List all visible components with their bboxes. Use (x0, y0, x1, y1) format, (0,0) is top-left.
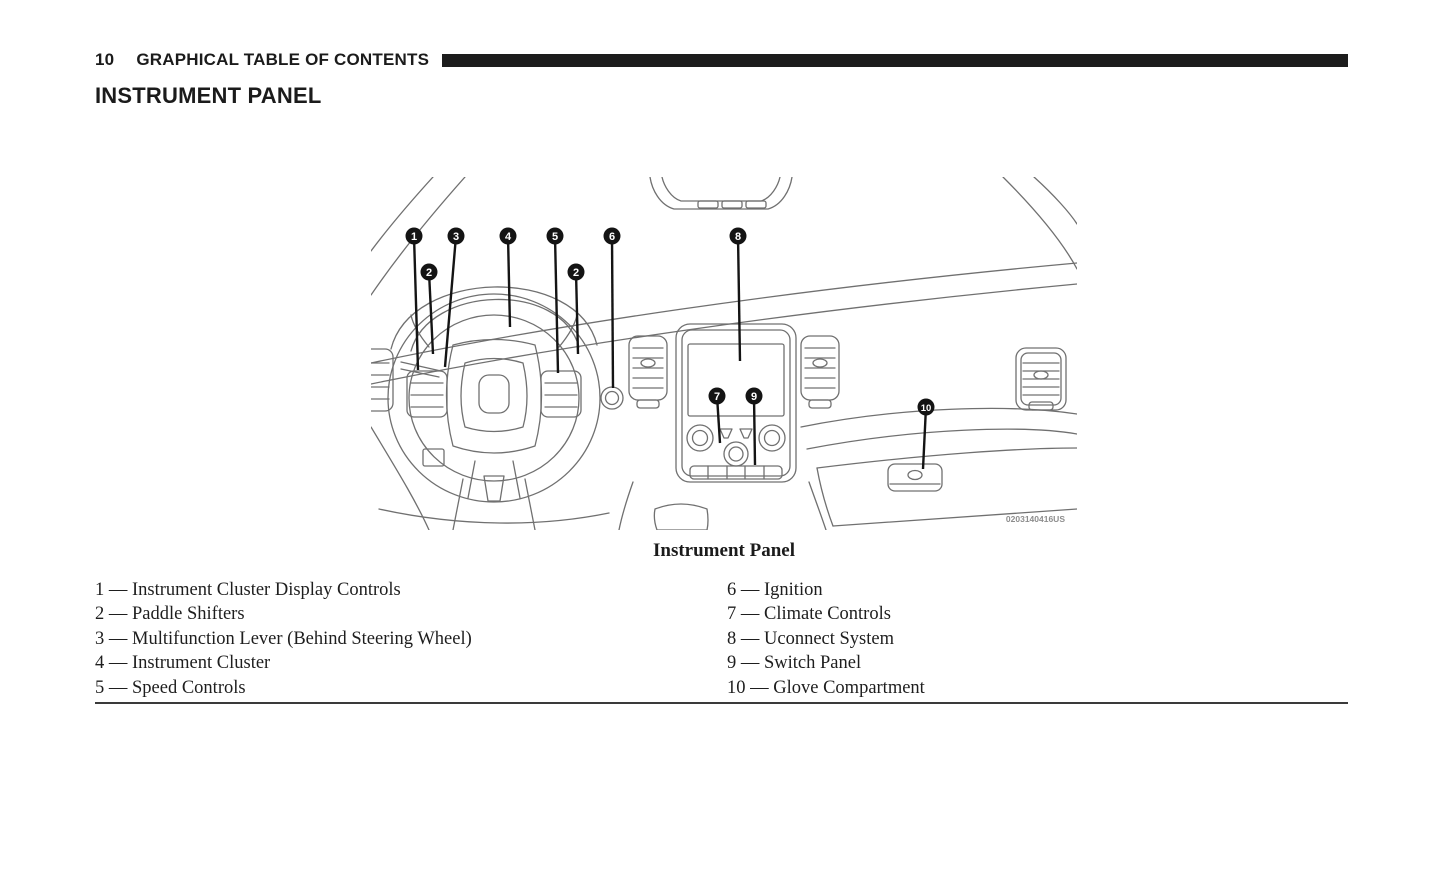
header-bar (442, 54, 1348, 67)
steering-wheel-rim (388, 294, 600, 502)
legend-item-10: 10 — Glove Compartment (727, 676, 925, 700)
callout-number-paddle-shifter-right: 2 (573, 267, 579, 279)
callouts-layer: 123452687910 (406, 228, 935, 470)
touchscreen (688, 344, 784, 416)
callout-number-uconnect-system: 8 (735, 231, 741, 243)
legend-item-7: 7 — Climate Controls (727, 602, 925, 626)
climate-knob-left (687, 425, 713, 451)
callout-leader-uconnect-system (738, 236, 740, 361)
left-wheel-controls (407, 371, 447, 417)
callout-number-instrument-cluster-display-controls: 1 (411, 231, 417, 243)
ignition-ring (601, 387, 623, 409)
figure-image-code: 0203140416US (1006, 514, 1065, 524)
section-title: INSTRUMENT PANEL (95, 83, 321, 109)
overhead-console (650, 177, 792, 209)
legend-item-6: 6 — Ignition (727, 578, 925, 602)
callout-leader-instrument-cluster (508, 236, 510, 327)
callout-leader-glove-compartment (923, 407, 926, 469)
callout-leader-ignition (612, 236, 613, 388)
callout-number-speed-controls: 5 (552, 231, 558, 243)
legend-column-right: 6 — Ignition7 — Climate Controls8 — Ucon… (727, 578, 925, 700)
figure-caption: Instrument Panel (371, 540, 1077, 562)
center-stack-bezel (676, 324, 796, 482)
callout-number-climate-controls: 7 (714, 391, 720, 403)
glove-latch (888, 464, 942, 491)
legend-item-9: 9 — Switch Panel (727, 651, 925, 675)
callout-number-multifunction-lever: 3 (453, 231, 459, 243)
bottom-rule (95, 702, 1348, 704)
legend-item-3: 3 — Multifunction Lever (Behind Steering… (95, 627, 472, 651)
callout-leader-instrument-cluster-display-controls (414, 236, 418, 370)
climate-knob-right (759, 425, 785, 451)
callout-number-switch-panel: 9 (751, 391, 757, 403)
glove-compartment-panel (817, 448, 1077, 468)
legend-column-left: 1 — Instrument Cluster Display Controls2… (95, 578, 472, 700)
switch-panel-row (690, 466, 782, 479)
gear-shifter (654, 504, 708, 530)
callout-number-ignition: 6 (609, 231, 615, 243)
legend-item-1: 1 — Instrument Cluster Display Controls (95, 578, 472, 602)
volume-knob (724, 442, 748, 466)
manual-page: 10 GRAPHICAL TABLE OF CONTENTS INSTRUMEN… (0, 0, 1445, 874)
dash-top-edge (371, 263, 1077, 363)
legend-item-8: 8 — Uconnect System (727, 627, 925, 651)
legend-item-5: 5 — Speed Controls (95, 676, 472, 700)
running-header: 10 GRAPHICAL TABLE OF CONTENTS (95, 50, 1348, 70)
callout-number-glove-compartment: 10 (921, 403, 932, 414)
multifunction-stalk (401, 362, 441, 377)
right-wheel-controls (541, 371, 581, 417)
running-header-title: GRAPHICAL TABLE OF CONTENTS (136, 50, 429, 70)
page-number: 10 (95, 50, 114, 70)
callout-leader-speed-controls (555, 236, 558, 373)
legend-item-4: 4 — Instrument Cluster (95, 651, 472, 675)
instrument-panel-figure: 0203140416US 123452687910 (371, 177, 1077, 530)
callout-leader-switch-panel (754, 396, 755, 465)
callout-number-paddle-shifter-left: 2 (426, 267, 432, 279)
right-a-pillar (1003, 177, 1077, 269)
callout-number-instrument-cluster: 4 (505, 231, 512, 243)
callout-leader-paddle-shifter-right (576, 272, 578, 354)
legend-item-2: 2 — Paddle Shifters (95, 602, 472, 626)
dashboard-line-drawing: 0203140416US 123452687910 (371, 177, 1077, 530)
